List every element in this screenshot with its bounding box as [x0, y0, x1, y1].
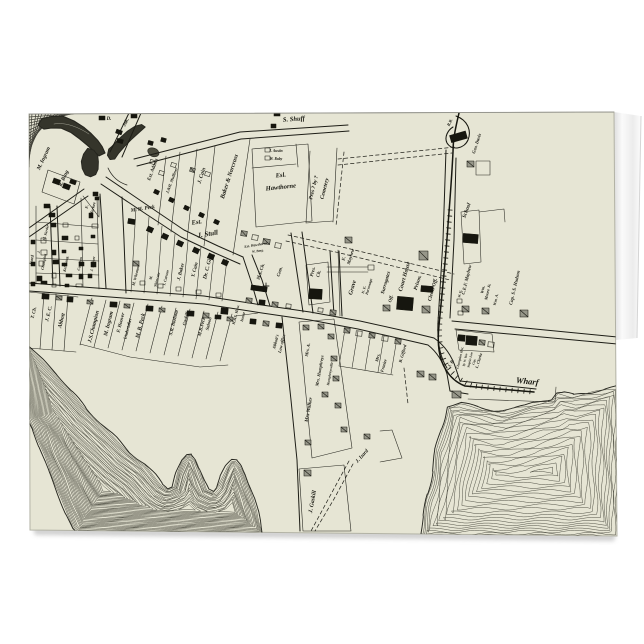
svg-text:D.: D. [106, 117, 112, 122]
svg-text:J. Austin: J. Austin [269, 149, 282, 153]
svg-text:W. Ruby: W. Ruby [270, 157, 283, 161]
svg-text:Esl.: Esl. [274, 171, 286, 179]
